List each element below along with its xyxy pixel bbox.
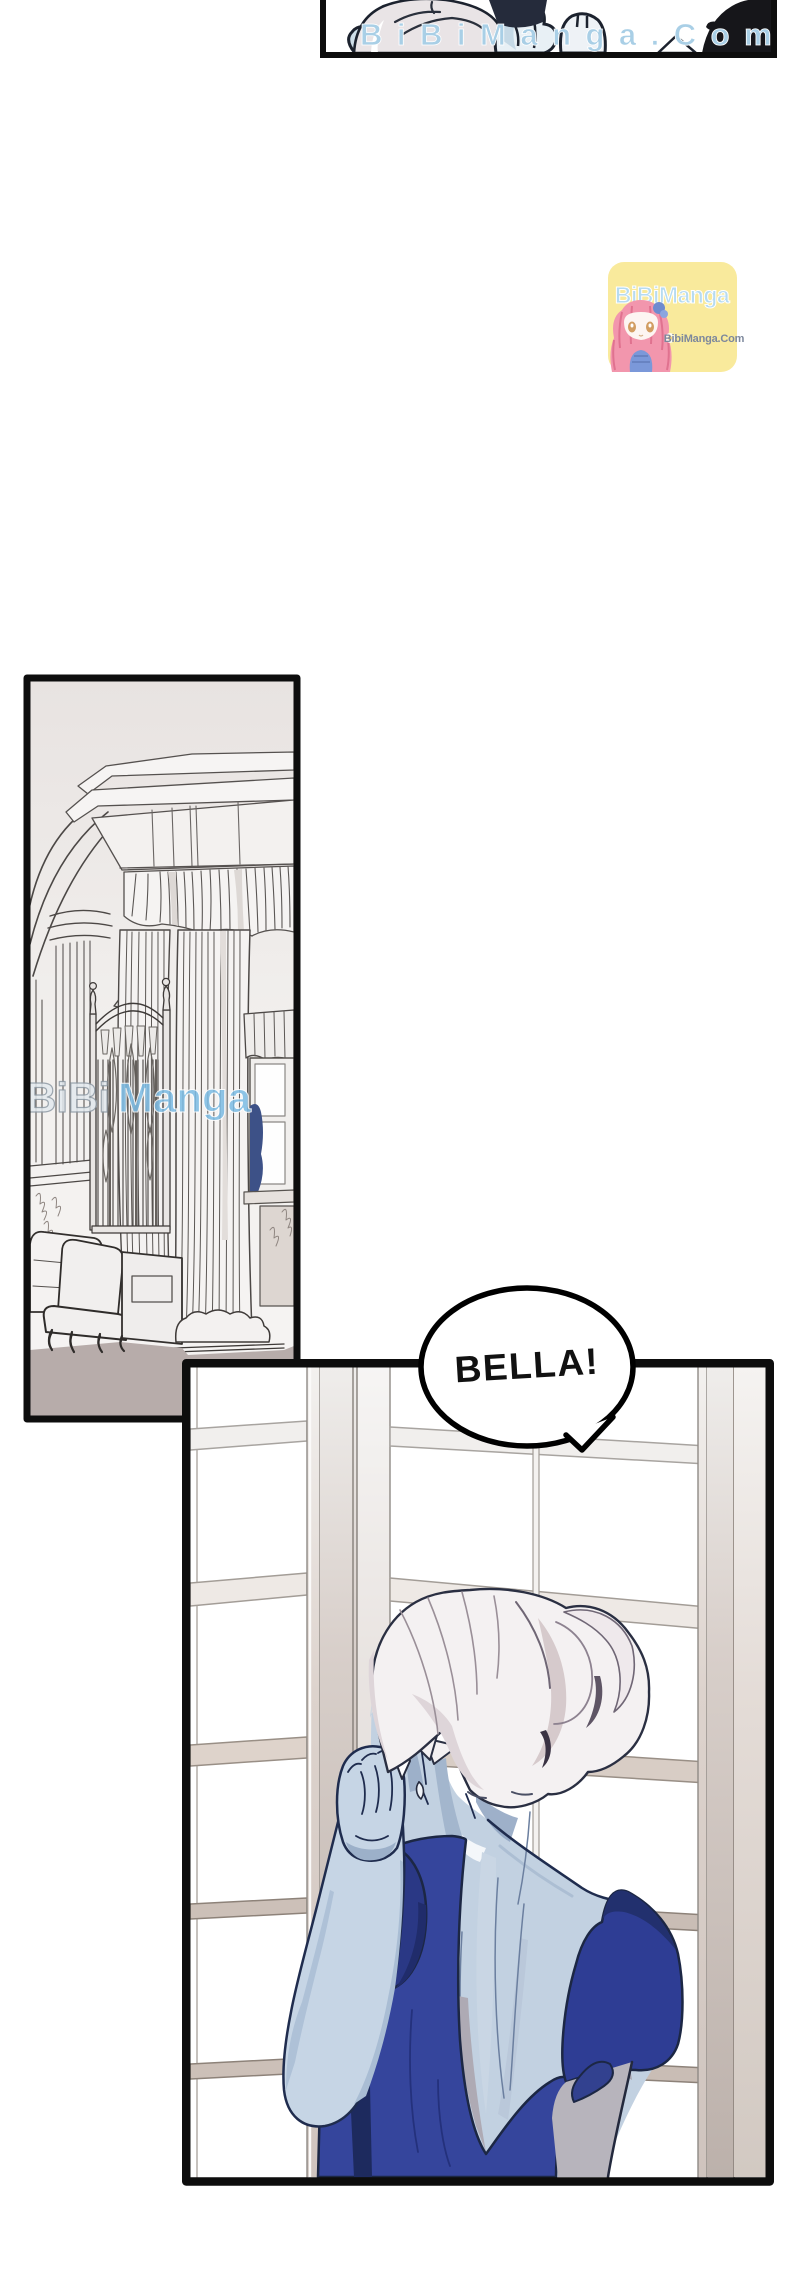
svg-text:BiBiManga.Com: BiBiManga.Com [360,17,786,52]
svg-text:BiBi: BiBi [26,1074,110,1121]
svg-text:BibiManga.Com: BibiManga.Com [664,333,745,345]
svg-text:Manga: Manga [118,1074,252,1121]
